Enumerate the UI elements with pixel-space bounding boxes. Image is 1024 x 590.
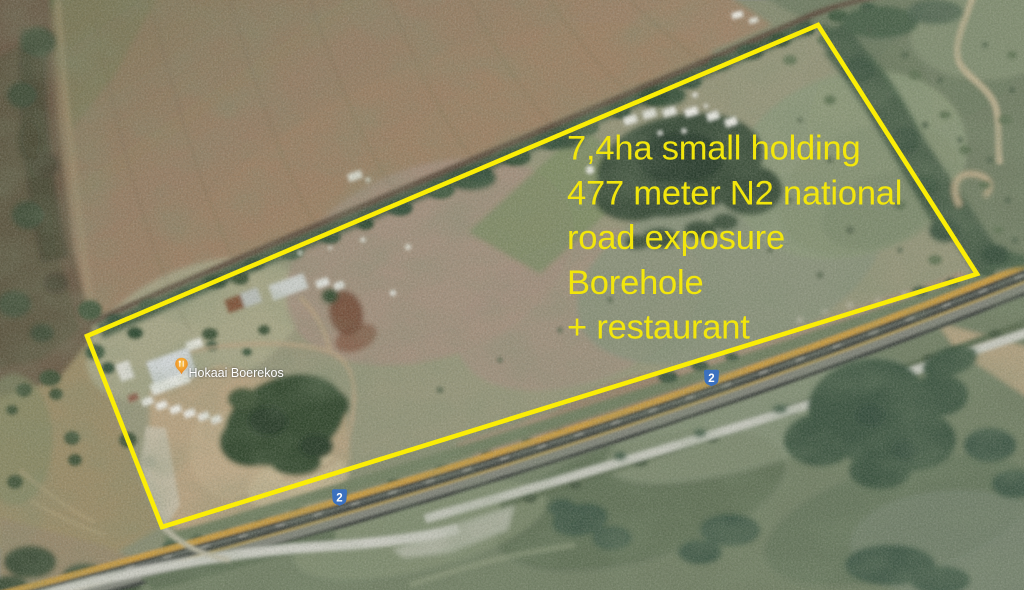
svg-text:Borehole: Borehole — [567, 264, 704, 302]
svg-text:2: 2 — [336, 493, 342, 505]
svg-text:477 meter N2 national: 477 meter N2 national — [567, 174, 902, 212]
svg-text:road exposure: road exposure — [567, 219, 785, 257]
svg-text:+ restaurant: + restaurant — [567, 309, 750, 347]
svg-text:Hokaai Boerekos: Hokaai Boerekos — [189, 366, 284, 380]
svg-text:7,4ha small holding: 7,4ha small holding — [567, 130, 860, 168]
svg-text:2: 2 — [708, 373, 714, 385]
